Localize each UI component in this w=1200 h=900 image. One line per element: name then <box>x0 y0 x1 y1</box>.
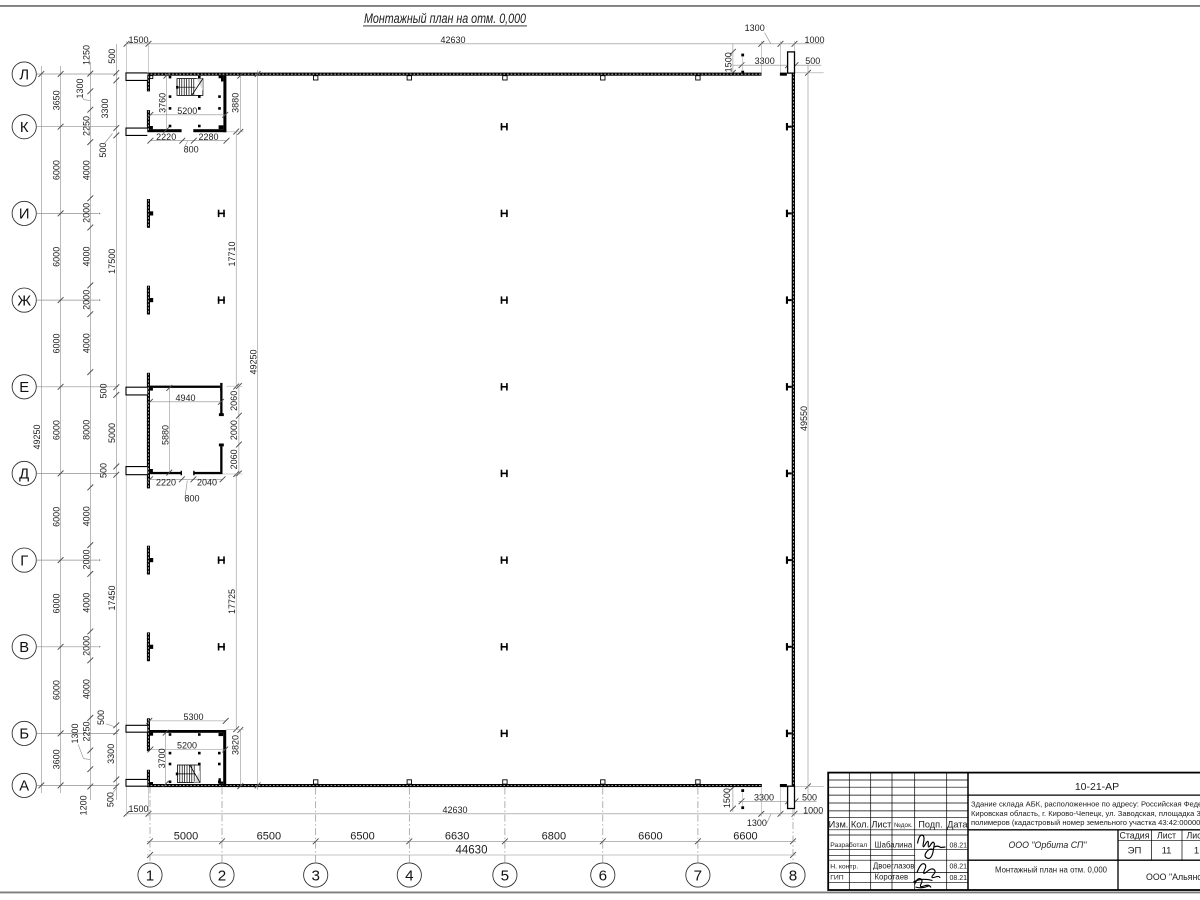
svg-text:3880: 3880 <box>230 93 240 113</box>
svg-text:44630: 44630 <box>456 845 488 857</box>
svg-text:2250: 2250 <box>81 116 91 136</box>
svg-text:6630: 6630 <box>445 831 469 843</box>
svg-text:Коротаев: Коротаев <box>875 873 909 882</box>
svg-text:Л: Л <box>19 67 29 83</box>
svg-text:2280: 2280 <box>198 132 218 142</box>
svg-text:3650: 3650 <box>52 90 62 110</box>
svg-text:1000: 1000 <box>804 35 824 45</box>
svg-text:4000: 4000 <box>81 333 91 353</box>
svg-text:Здание склада АБК, расположенн: Здание склада АБК, расположенное по адре… <box>971 800 1200 809</box>
svg-text:Разработал: Разработал <box>830 841 867 849</box>
svg-text:1300: 1300 <box>70 723 80 743</box>
svg-text:500: 500 <box>99 463 109 478</box>
svg-text:Двоеглазов: Двоеглазов <box>873 862 914 871</box>
svg-text:ООО "Альянс П: ООО "Альянс П <box>1146 872 1200 882</box>
svg-text:1200: 1200 <box>79 795 89 815</box>
svg-text:500: 500 <box>96 710 106 725</box>
svg-text:Н. контр.: Н. контр. <box>830 863 858 870</box>
svg-text:800: 800 <box>184 493 199 503</box>
svg-text:Лист: Лист <box>871 820 892 830</box>
svg-text:500: 500 <box>105 792 115 807</box>
svg-text:08.21: 08.21 <box>950 864 968 871</box>
svg-text:6000: 6000 <box>52 680 62 700</box>
svg-text:6600: 6600 <box>638 831 662 843</box>
svg-text:1: 1 <box>146 868 154 885</box>
svg-text:6000: 6000 <box>52 247 62 267</box>
svg-text:3700: 3700 <box>157 748 167 768</box>
svg-text:И: И <box>19 207 30 223</box>
svg-text:6000: 6000 <box>52 160 62 180</box>
svg-text:2220: 2220 <box>156 132 176 142</box>
svg-text:3300: 3300 <box>755 56 775 66</box>
svg-text:7: 7 <box>694 868 702 885</box>
svg-text:2000: 2000 <box>81 290 91 310</box>
svg-text:Дата: Дата <box>947 820 968 830</box>
svg-text:Монтажный план на отм. 0,000: Монтажный план на отм. 0,000 <box>364 11 526 26</box>
svg-text:1300: 1300 <box>747 818 767 828</box>
svg-text:Д: Д <box>19 467 29 483</box>
svg-text:49550: 49550 <box>799 406 809 431</box>
svg-text:1500: 1500 <box>723 52 733 72</box>
svg-text:2040: 2040 <box>197 477 217 487</box>
svg-text:3: 3 <box>311 868 319 885</box>
svg-text:4940: 4940 <box>175 393 195 403</box>
svg-text:17500: 17500 <box>107 249 117 274</box>
svg-text:2060: 2060 <box>229 391 239 411</box>
svg-text:Ж: Ж <box>17 293 31 309</box>
svg-text:ООО "Орбита СП": ООО "Орбита СП" <box>1008 840 1087 850</box>
svg-text:В: В <box>19 640 29 656</box>
svg-text:1: 1 <box>1194 846 1199 857</box>
svg-text:5880: 5880 <box>160 425 170 445</box>
svg-text:1500: 1500 <box>128 35 148 45</box>
svg-text:1300: 1300 <box>745 23 765 33</box>
svg-text:17725: 17725 <box>227 589 237 614</box>
svg-text:1500: 1500 <box>722 788 732 808</box>
svg-text:8000: 8000 <box>81 420 91 440</box>
svg-text:6000: 6000 <box>52 333 62 353</box>
svg-text:2250: 2250 <box>81 721 91 741</box>
svg-text:11: 11 <box>1162 846 1172 857</box>
svg-text:3820: 3820 <box>230 735 240 755</box>
svg-text:10-21-АР: 10-21-АР <box>1075 781 1119 793</box>
svg-text:Г: Г <box>20 553 28 569</box>
svg-text:17450: 17450 <box>107 585 117 610</box>
svg-text:5000: 5000 <box>107 423 117 443</box>
svg-text:1000: 1000 <box>803 805 823 815</box>
svg-text:3300: 3300 <box>100 98 110 118</box>
svg-text:Монтажный план на отм. 0,000: Монтажный план на отм. 0,000 <box>995 866 1108 875</box>
svg-text:6: 6 <box>599 868 607 885</box>
svg-text:5000: 5000 <box>174 831 198 843</box>
svg-text:А: А <box>19 779 29 795</box>
svg-text:2: 2 <box>218 868 226 885</box>
svg-text:6000: 6000 <box>52 507 62 527</box>
svg-text:2220: 2220 <box>156 477 176 487</box>
svg-text:2060: 2060 <box>229 449 239 469</box>
svg-text:4000: 4000 <box>81 506 91 526</box>
svg-text:ЭП: ЭП <box>1128 846 1142 857</box>
svg-text:2000: 2000 <box>229 420 239 440</box>
svg-text:6000: 6000 <box>52 420 62 440</box>
svg-text:№док.: №док. <box>894 822 913 829</box>
svg-text:500: 500 <box>98 143 108 158</box>
svg-text:4000: 4000 <box>81 593 91 613</box>
svg-text:6600: 6600 <box>733 831 757 843</box>
svg-text:ГИП: ГИП <box>830 875 844 882</box>
svg-text:1250: 1250 <box>81 45 91 65</box>
svg-text:6500: 6500 <box>350 831 374 843</box>
svg-text:500: 500 <box>99 383 109 398</box>
svg-text:6000: 6000 <box>52 593 62 613</box>
svg-text:1300: 1300 <box>75 78 85 98</box>
svg-text:42630: 42630 <box>442 805 467 815</box>
svg-text:Е: Е <box>19 380 29 396</box>
svg-text:3300: 3300 <box>754 792 774 802</box>
svg-text:8: 8 <box>789 868 797 885</box>
svg-text:800: 800 <box>184 145 199 155</box>
svg-text:3760: 3760 <box>158 93 168 113</box>
svg-text:42630: 42630 <box>440 35 465 45</box>
svg-text:3300: 3300 <box>106 744 116 764</box>
svg-text:17710: 17710 <box>227 241 237 266</box>
svg-text:К: К <box>20 120 29 136</box>
svg-text:2000: 2000 <box>81 636 91 656</box>
svg-text:полимеров (кадастровый номер з: полимеров (кадастровый номер земельного … <box>971 818 1200 827</box>
svg-text:3600: 3600 <box>52 749 62 769</box>
svg-text:5200: 5200 <box>177 106 197 116</box>
svg-text:Изм.: Изм. <box>829 820 849 830</box>
svg-text:4000: 4000 <box>81 246 91 266</box>
svg-text:4000: 4000 <box>81 679 91 699</box>
svg-text:5300: 5300 <box>183 712 203 722</box>
svg-text:6800: 6800 <box>542 831 566 843</box>
svg-text:2000: 2000 <box>81 203 91 223</box>
svg-text:5200: 5200 <box>177 741 197 751</box>
svg-text:Лис: Лис <box>1187 830 1200 840</box>
svg-text:Стадия: Стадия <box>1120 830 1150 840</box>
svg-text:500: 500 <box>805 56 820 66</box>
svg-text:08.21: 08.21 <box>950 875 968 882</box>
svg-text:49250: 49250 <box>32 424 42 449</box>
svg-text:1500: 1500 <box>128 804 148 814</box>
svg-text:500: 500 <box>107 49 117 64</box>
svg-text:500: 500 <box>802 792 817 802</box>
svg-text:Лист: Лист <box>1157 830 1176 840</box>
svg-text:4000: 4000 <box>81 160 91 180</box>
svg-text:6500: 6500 <box>257 831 281 843</box>
svg-text:Подп.: Подп. <box>918 820 942 830</box>
svg-text:5: 5 <box>501 868 509 885</box>
svg-text:2000: 2000 <box>81 549 91 569</box>
svg-text:Шабалина: Шабалина <box>875 840 913 849</box>
svg-text:Кировская область, г. Кирово-Ч: Кировская область, г. Кирово-Чепецк, ул.… <box>971 809 1200 818</box>
svg-text:4: 4 <box>405 868 413 885</box>
svg-text:Кол.: Кол. <box>851 820 869 830</box>
svg-text:Б: Б <box>19 727 29 743</box>
svg-text:49250: 49250 <box>248 349 258 374</box>
svg-text:08.21: 08.21 <box>950 842 968 849</box>
